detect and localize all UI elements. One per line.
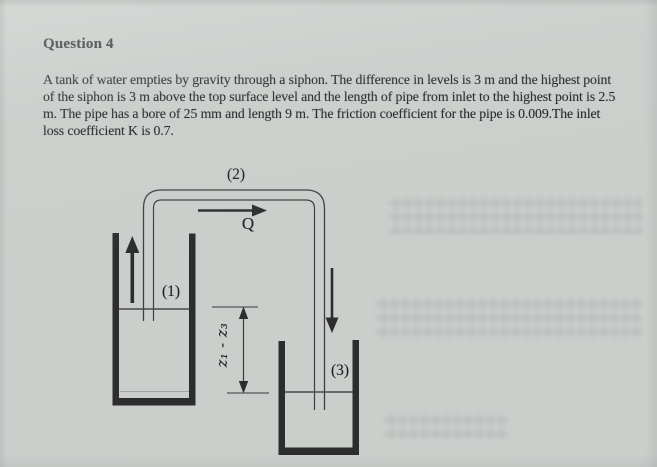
siphon-diagram [0, 0, 657, 467]
dimension-arrow-down [239, 381, 248, 394]
label-point-3: (3) [325, 362, 355, 380]
upward-flow-arrow-shaft [131, 251, 135, 303]
right-tank-wall-left [279, 341, 286, 455]
left-tank-bottom [113, 398, 196, 406]
document-photo: Question 4 A tank of water empties by gr… [0, 0, 657, 467]
label-point-2: (2) [221, 166, 251, 184]
flow-rate-label: Q [237, 214, 259, 234]
downward-flow-arrow-head [326, 318, 339, 334]
right-tank-wall-right [353, 340, 360, 454]
upward-flow-arrow-head [125, 236, 139, 253]
right-tank-bottom [279, 448, 360, 456]
height-difference-label: z₁ - z₃ [214, 310, 232, 380]
left-tank-wall-left [113, 233, 120, 405]
siphon-pipe-inner-line [154, 200, 315, 410]
label-point-1: (1) [156, 283, 186, 301]
left-tank-wall-right [189, 234, 196, 406]
dimension-arrow-up [239, 307, 248, 320]
